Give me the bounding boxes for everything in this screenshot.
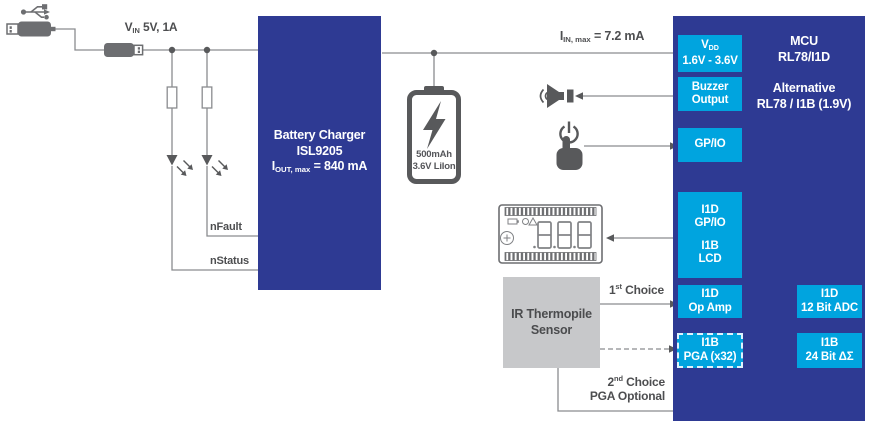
- ir-thermopile-sensor-block: IR Thermopile Sensor: [503, 277, 600, 368]
- usb-plug-icon: [104, 43, 143, 57]
- mcu-title-line: MCU: [744, 33, 864, 49]
- mcu-part-number: RL78/I1D: [744, 49, 864, 65]
- resistors: [167, 87, 212, 108]
- usb-symbol-icon: [21, 4, 50, 19]
- led-emission-arrows: [177, 161, 225, 174]
- first-choice-label: 1st Choice: [596, 282, 664, 297]
- vdd-block: VDD 1.6V - 3.6V: [678, 35, 742, 72]
- charger-iout-spec: IOUT, max = 840 mA: [272, 159, 368, 178]
- arrow-to-lcd-icon: [606, 234, 614, 242]
- resistor: [202, 87, 212, 108]
- wire-nstatus-branch: [172, 50, 259, 270]
- resistor: [167, 87, 177, 108]
- led-emission-arrowheads: [181, 164, 228, 176]
- mcu-alt-label: Alternative: [744, 80, 864, 96]
- led-indicators: [167, 155, 229, 176]
- lcd-io-block: I1D GP/IO I1B LCD: [678, 192, 742, 278]
- lcd-display-icon: [499, 205, 602, 263]
- touch-icon: [557, 122, 583, 171]
- led-icon: [202, 155, 213, 166]
- buzzer-output-block: Buzzer Output: [678, 77, 742, 111]
- junction-dot: [204, 47, 210, 53]
- second-choice-label: 2nd Choice: [590, 374, 665, 389]
- wire-usb-cable: [55, 29, 104, 50]
- junction-dot: [169, 47, 175, 53]
- usb-plug-icon: [7, 22, 56, 37]
- vdd-label: VDD: [701, 39, 719, 55]
- arrow-to-buzzer-icon: [575, 92, 583, 100]
- gpio-block: GP/IO: [678, 128, 742, 162]
- junction-dot: [431, 50, 437, 56]
- pga-optional-label: PGA Optional: [580, 389, 665, 403]
- led-icon: [167, 155, 178, 166]
- nfault-label: nFault: [210, 221, 242, 233]
- adc-block: I1D 12 Bit ADC: [797, 285, 862, 318]
- opamp-block: I1D Op Amp: [678, 285, 742, 318]
- charger-title: Battery Charger: [274, 128, 365, 144]
- battery-charger-block: Battery Charger ISL9205 IOUT, max = 840 …: [258, 16, 381, 290]
- vdd-range: 1.6V - 3.6V: [682, 55, 737, 69]
- buzzer-icon: [541, 84, 574, 108]
- mcu-alt-part: RL78 / I1B (1.9V): [744, 96, 864, 112]
- mcu-alternative: Alternative RL78 / I1B (1.9V): [744, 80, 864, 112]
- nstatus-label: nStatus: [210, 255, 249, 267]
- mcu-title: MCU RL78/I1D: [744, 33, 864, 65]
- charger-part-number: ISL9205: [297, 144, 343, 160]
- wire-nfault-branch: [207, 50, 259, 236]
- iin-label: IIN, max = 7.2 mA: [552, 29, 652, 44]
- delta-sigma-block: I1B 24 Bit ΔΣ: [797, 333, 862, 368]
- vin-label: VIN 5V, 1A: [118, 20, 184, 35]
- application-diagram: Battery Charger ISL9205 IOUT, max = 840 …: [0, 0, 883, 428]
- pga-block: I1B PGA (x32): [677, 333, 743, 368]
- battery-spec-label: 500mAh 3.6V LiIon: [407, 149, 461, 172]
